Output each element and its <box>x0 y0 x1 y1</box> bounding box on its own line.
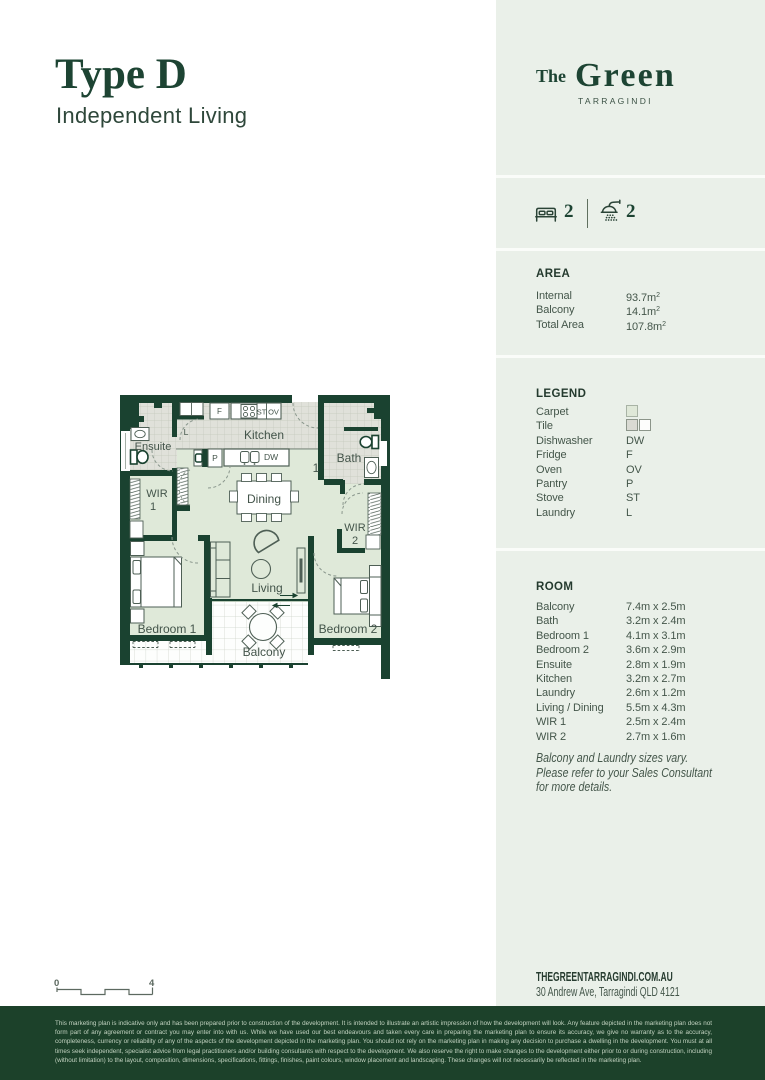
svg-text:P: P <box>212 453 218 463</box>
svg-text:Kitchen: Kitchen <box>244 428 284 442</box>
svg-text:L: L <box>184 427 189 437</box>
svg-text:Bath: Bath <box>337 451 362 465</box>
svg-text:0: 0 <box>54 978 59 989</box>
svg-text:1: 1 <box>150 501 156 513</box>
svg-text:OV: OV <box>268 408 279 417</box>
svg-text:Living: Living <box>251 581 282 595</box>
svg-text:Bedroom 1: Bedroom 1 <box>138 622 197 636</box>
svg-text:DW: DW <box>264 452 278 462</box>
svg-text:ST: ST <box>257 408 267 417</box>
svg-text:Ensuite: Ensuite <box>135 441 172 453</box>
svg-text:Bedroom 2: Bedroom 2 <box>319 622 378 636</box>
svg-text:2: 2 <box>352 535 358 547</box>
svg-text:WIR: WIR <box>344 522 365 534</box>
svg-text:Balcony: Balcony <box>243 645 286 659</box>
svg-text:F: F <box>217 407 222 416</box>
svg-text:WIR: WIR <box>146 488 167 500</box>
svg-text:1: 1 <box>313 461 320 475</box>
svg-text:4: 4 <box>149 978 155 989</box>
svg-text:Dining: Dining <box>247 492 281 506</box>
